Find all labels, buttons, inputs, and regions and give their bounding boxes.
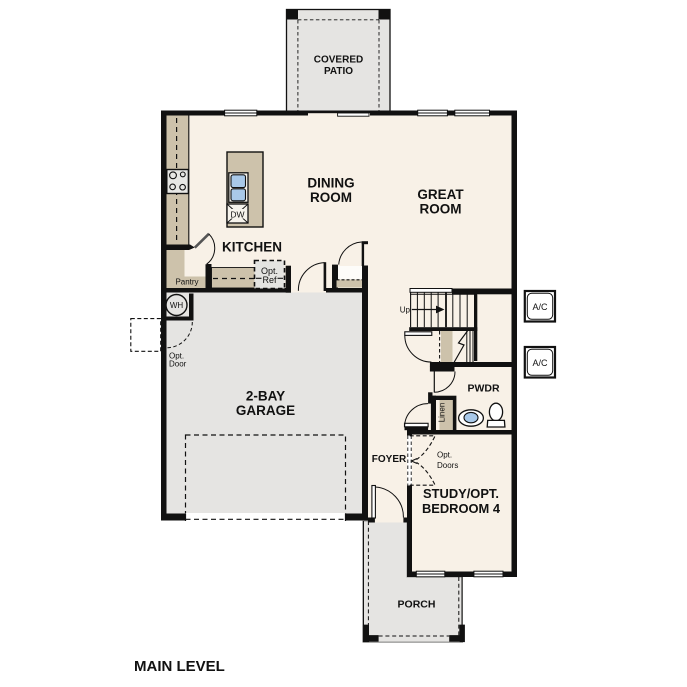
svg-text:Door: Door [169, 360, 187, 369]
svg-text:PORCH: PORCH [398, 599, 436, 611]
svg-text:COVERED: COVERED [314, 55, 363, 66]
svg-text:KITCHEN: KITCHEN [222, 240, 282, 255]
svg-text:PATIO: PATIO [324, 66, 353, 77]
svg-text:Doors: Doors [437, 461, 458, 470]
svg-text:DW: DW [230, 210, 244, 220]
svg-text:ROOM: ROOM [420, 202, 462, 217]
svg-text:Up: Up [400, 306, 411, 315]
svg-text:STUDY/OPT.: STUDY/OPT. [423, 486, 499, 501]
svg-text:BEDROOM 4: BEDROOM 4 [422, 501, 501, 516]
svg-text:Pantry: Pantry [175, 278, 198, 287]
svg-text:A/C: A/C [532, 302, 548, 312]
svg-text:ROOM: ROOM [310, 190, 352, 205]
svg-text:WH: WH [170, 301, 184, 310]
svg-text:A/C: A/C [532, 358, 548, 368]
svg-text:GARAGE: GARAGE [236, 403, 295, 418]
svg-text:Opt.: Opt. [437, 451, 452, 460]
svg-text:DINING: DINING [307, 176, 354, 191]
svg-text:Linen: Linen [438, 403, 447, 423]
svg-text:GREAT: GREAT [417, 187, 464, 202]
svg-text:MAIN LEVEL: MAIN LEVEL [134, 658, 225, 675]
svg-text:PWDR: PWDR [467, 383, 499, 395]
svg-text:Ref: Ref [262, 275, 277, 285]
svg-text:FOYER: FOYER [372, 454, 407, 465]
svg-text:2-BAY: 2-BAY [246, 389, 285, 404]
